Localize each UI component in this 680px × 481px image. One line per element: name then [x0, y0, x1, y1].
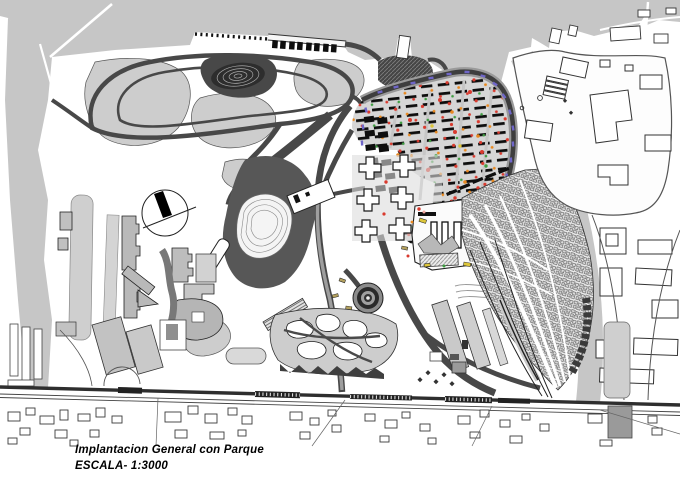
contour-garden [198, 156, 335, 288]
canal-basin [604, 322, 630, 398]
west-city [58, 195, 223, 340]
plan-title: Implantacion General con Parque [75, 442, 264, 458]
north-symbol [142, 190, 196, 236]
caption: Implantacion General con Parque ESCALA- … [75, 442, 264, 474]
plan-scale: ESCALA- 1:3000 [75, 458, 264, 474]
amphitheater [201, 53, 277, 97]
small-pier [397, 35, 411, 58]
organic-garden [270, 308, 398, 379]
rail-yard-block [608, 406, 632, 438]
site-plan-drawing [0, 0, 680, 481]
south-village [8, 398, 680, 446]
plaza-diamonds [417, 370, 454, 386]
plan-sheet: Implantacion General con Parque ESCALA- … [0, 0, 680, 481]
spiral-structure [353, 283, 383, 313]
